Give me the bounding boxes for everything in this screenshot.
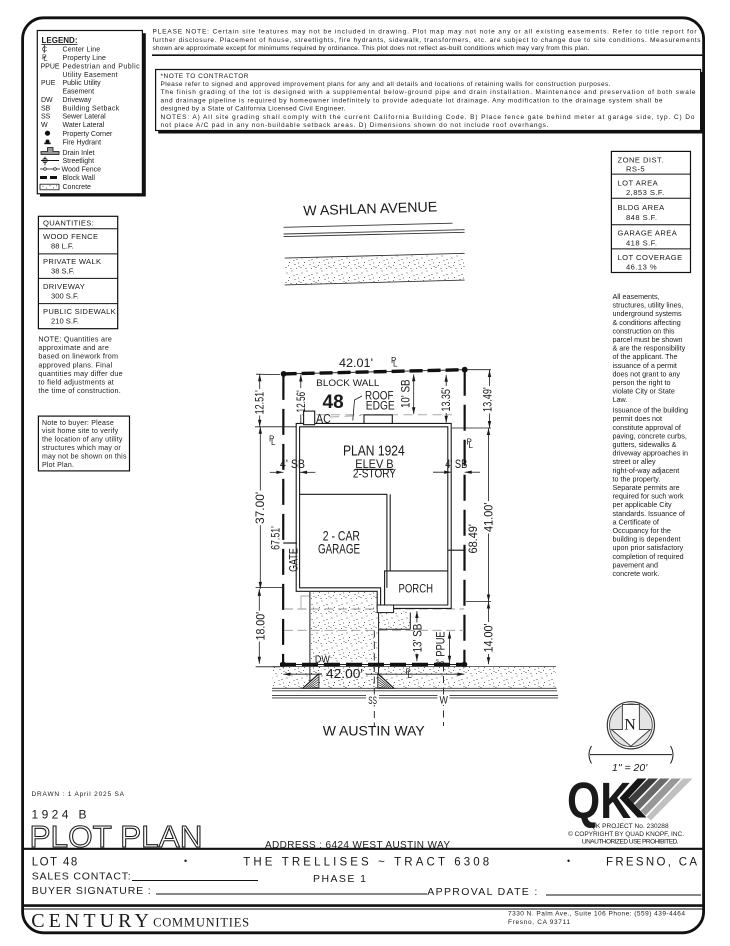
svg-text:PUBLIC SIDEWALK: PUBLIC SIDEWALK bbox=[43, 307, 116, 316]
svg-text:7330 N. Palm Ave., Suite 106: 7330 N. Palm Ave., Suite 106 Phone: (559… bbox=[508, 911, 685, 918]
svg-text:QUANTITIES:: QUANTITIES: bbox=[43, 219, 94, 228]
svg-text:FRESNO, CA: FRESNO, CA bbox=[606, 856, 697, 868]
svg-text:Note to buyer: Please: Note to buyer: Please bbox=[42, 420, 114, 427]
svg-text:designed by a State of Califor: designed by a State of California Licens… bbox=[161, 106, 346, 113]
svg-text:EDGE: EDGE bbox=[366, 400, 395, 412]
svg-text:L: L bbox=[271, 438, 276, 447]
svg-text:shown are approximate except f: shown are approximate except for minimum… bbox=[153, 45, 590, 52]
svg-text:the location of any utility: the location of any utility bbox=[42, 437, 123, 444]
svg-text:Building Setback: Building Setback bbox=[63, 105, 120, 112]
svg-text:PPUE: PPUE bbox=[41, 63, 60, 70]
svg-text:QK PROJECT No. 230288: QK PROJECT No. 230288 bbox=[591, 823, 669, 830]
svg-text:Drain Inlet: Drain Inlet bbox=[63, 150, 95, 157]
svg-text:W AUSTIN WAY: W AUSTIN WAY bbox=[323, 723, 426, 739]
svg-text:PUE: PUE bbox=[41, 80, 56, 87]
svg-text:BLOCK WALL: BLOCK WALL bbox=[316, 378, 379, 389]
svg-text:13.35': 13.35' bbox=[439, 388, 453, 412]
svg-text:41.00': 41.00' bbox=[482, 503, 496, 533]
svg-text:Center Line: Center Line bbox=[63, 46, 101, 53]
svg-text:42.01': 42.01' bbox=[339, 358, 373, 370]
svg-text:L: L bbox=[469, 441, 474, 450]
svg-text:COMMUNITIES: COMMUNITIES bbox=[153, 915, 249, 929]
svg-text:Easement: Easement bbox=[63, 89, 95, 96]
svg-text:4' SB: 4' SB bbox=[280, 457, 305, 471]
svg-text:QK: QK bbox=[567, 772, 631, 829]
svg-text:Wood Fence: Wood Fence bbox=[62, 167, 102, 174]
svg-text:The finish grading of the lot: The finish grading of the lot is designe… bbox=[161, 89, 696, 96]
svg-text:38 S.F.: 38 S.F. bbox=[51, 267, 75, 276]
svg-text:12.51': 12.51' bbox=[253, 390, 267, 414]
svg-text:L: L bbox=[393, 360, 398, 369]
svg-text:PHASE 1: PHASE 1 bbox=[313, 873, 366, 885]
svg-text:W: W bbox=[440, 695, 449, 707]
svg-text:300 S.F.: 300 S.F. bbox=[51, 292, 79, 301]
svg-text:further disclosure. Placement: further disclosure. Placement of house, … bbox=[153, 37, 702, 44]
svg-text:•: • bbox=[184, 856, 187, 866]
svg-text:BLDG AREA: BLDG AREA bbox=[618, 203, 666, 212]
svg-text:Utility Easement: Utility Easement bbox=[63, 72, 118, 79]
svg-text:•: • bbox=[567, 856, 570, 866]
svg-text:LOT AREA: LOT AREA bbox=[618, 179, 659, 188]
svg-text:BUYER SIGNATURE :: BUYER SIGNATURE : bbox=[32, 885, 151, 897]
svg-text:AC: AC bbox=[316, 412, 331, 426]
svg-text:2-STORY: 2-STORY bbox=[353, 467, 396, 481]
svg-text:Streetlight: Streetlight bbox=[63, 158, 95, 165]
svg-text:14.00': 14.00' bbox=[482, 624, 496, 653]
svg-text:Plot Plan.: Plot Plan. bbox=[42, 462, 74, 469]
svg-text:Law.: Law. bbox=[613, 395, 628, 404]
svg-text:WOOD FENCE: WOOD FENCE bbox=[43, 232, 98, 241]
svg-text:W: W bbox=[41, 122, 48, 129]
svg-text:PORCH: PORCH bbox=[399, 583, 434, 595]
svg-text:848 S.F.: 848 S.F. bbox=[626, 213, 657, 222]
svg-text:SS: SS bbox=[41, 114, 51, 121]
svg-text:67.51': 67.51' bbox=[269, 526, 283, 550]
svg-text:PLEASE NOTE: Certain site fea: PLEASE NOTE: Certain site features may n… bbox=[153, 29, 698, 36]
svg-text:GATE: GATE bbox=[287, 548, 301, 572]
svg-text:13.49': 13.49' bbox=[481, 387, 495, 412]
svg-text:Public Utility: Public Utility bbox=[63, 80, 102, 87]
svg-text:48: 48 bbox=[323, 392, 344, 413]
svg-text:10' SB: 10' SB bbox=[399, 380, 413, 409]
svg-text:SALES CONTACT:: SALES CONTACT: bbox=[32, 871, 131, 883]
svg-text:DW: DW bbox=[41, 97, 53, 104]
svg-text:the time of construction.: the time of construction. bbox=[38, 386, 121, 395]
svg-text:18.00': 18.00' bbox=[254, 612, 268, 641]
svg-text:ZONE DIST.: ZONE DIST. bbox=[618, 156, 664, 165]
svg-text:L: L bbox=[44, 56, 48, 63]
svg-text:not place A/C pad in any non-b: not place A/C pad in any non-buildable s… bbox=[161, 122, 549, 129]
svg-text:Driveway: Driveway bbox=[63, 97, 92, 104]
svg-text:Concrete: Concrete bbox=[63, 184, 92, 191]
svg-text:NOTES: A) All site grading s: NOTES: A) All site grading shall comply … bbox=[161, 114, 695, 121]
svg-text:8' PPUE: 8' PPUE bbox=[434, 632, 448, 667]
svg-text:DRAWN : 1 April 2025 SA: DRAWN : 1 April 2025 SA bbox=[32, 791, 125, 798]
svg-text:Block Wall: Block Wall bbox=[63, 175, 96, 182]
svg-text:GARAGE AREA: GARAGE AREA bbox=[618, 229, 678, 238]
svg-text:Fire Hydrant: Fire Hydrant bbox=[63, 139, 102, 146]
svg-text:Sewer Lateral: Sewer Lateral bbox=[63, 114, 107, 121]
svg-text:4' SB: 4' SB bbox=[445, 457, 467, 471]
svg-text:structures which may or: structures which may or bbox=[42, 445, 121, 452]
svg-text:Property Line: Property Line bbox=[63, 55, 107, 62]
svg-text:visit home site to verify: visit home site to verify bbox=[42, 428, 119, 435]
svg-text:418 S.F.: 418 S.F. bbox=[626, 239, 657, 248]
svg-text:N: N bbox=[624, 717, 636, 734]
svg-text:Fresno, CA 93711: Fresno, CA 93711 bbox=[508, 919, 570, 926]
svg-text:SS: SS bbox=[368, 695, 377, 707]
svg-text:PRIVATE WALK: PRIVATE WALK bbox=[43, 257, 101, 266]
svg-text:88 L.F.: 88 L.F. bbox=[51, 242, 74, 251]
svg-text:68.49': 68.49' bbox=[466, 524, 480, 554]
svg-text:2,853 S.F.: 2,853 S.F. bbox=[626, 188, 665, 197]
svg-text:13' SB: 13' SB bbox=[411, 624, 425, 653]
svg-text:DW: DW bbox=[315, 654, 330, 666]
svg-text:© COPYRIGHT BY QUAD KNOPF, I: © COPYRIGHT BY QUAD KNOPF, INC. bbox=[568, 830, 684, 838]
svg-text:Pedestrian and Public: Pedestrian and Public bbox=[63, 63, 141, 70]
svg-text:RS-5: RS-5 bbox=[626, 165, 645, 174]
svg-text:DRIVEWAY: DRIVEWAY bbox=[43, 282, 85, 291]
svg-text:Please refer to signed and app: Please refer to signed and approved impr… bbox=[161, 81, 611, 88]
svg-text:Property Corner: Property Corner bbox=[63, 131, 113, 138]
svg-text:may not be shown on this: may not be shown on this bbox=[42, 453, 127, 460]
svg-text:GARAGE: GARAGE bbox=[318, 541, 360, 557]
svg-text:concrete work.: concrete work. bbox=[613, 569, 660, 578]
svg-text:UNAUTHORIZED USE PROHIBITED.: UNAUTHORIZED USE PROHIBITED. bbox=[582, 838, 679, 845]
svg-text:12.56': 12.56' bbox=[294, 390, 308, 412]
svg-text:Water Lateral: Water Lateral bbox=[63, 122, 105, 129]
svg-text:37.00': 37.00' bbox=[253, 492, 267, 524]
svg-text:LEGEND:: LEGEND: bbox=[42, 36, 78, 45]
svg-text:46.13 %: 46.13 % bbox=[626, 263, 657, 272]
svg-text:LOT COVERAGE: LOT COVERAGE bbox=[618, 253, 683, 262]
svg-text:and drainage pipeline is requi: and drainage pipeline is required by hom… bbox=[161, 97, 663, 104]
svg-text:SB: SB bbox=[41, 105, 51, 112]
svg-text:*NOTE TO CONTRACTOR: *NOTE TO CONTRACTOR bbox=[161, 73, 249, 80]
svg-text:210 S.F.: 210 S.F. bbox=[51, 317, 79, 326]
